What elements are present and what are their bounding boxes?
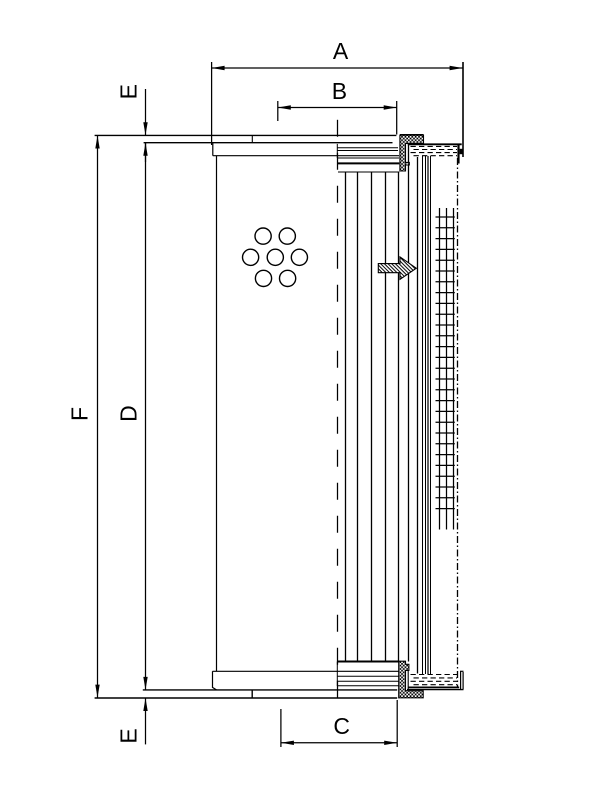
svg-text:E: E xyxy=(116,84,142,99)
svg-text:C: C xyxy=(333,713,350,739)
svg-text:D: D xyxy=(115,405,141,422)
svg-text:A: A xyxy=(333,38,349,64)
svg-text:E: E xyxy=(116,728,142,743)
svg-text:B: B xyxy=(332,78,347,104)
svg-text:F: F xyxy=(66,407,92,421)
